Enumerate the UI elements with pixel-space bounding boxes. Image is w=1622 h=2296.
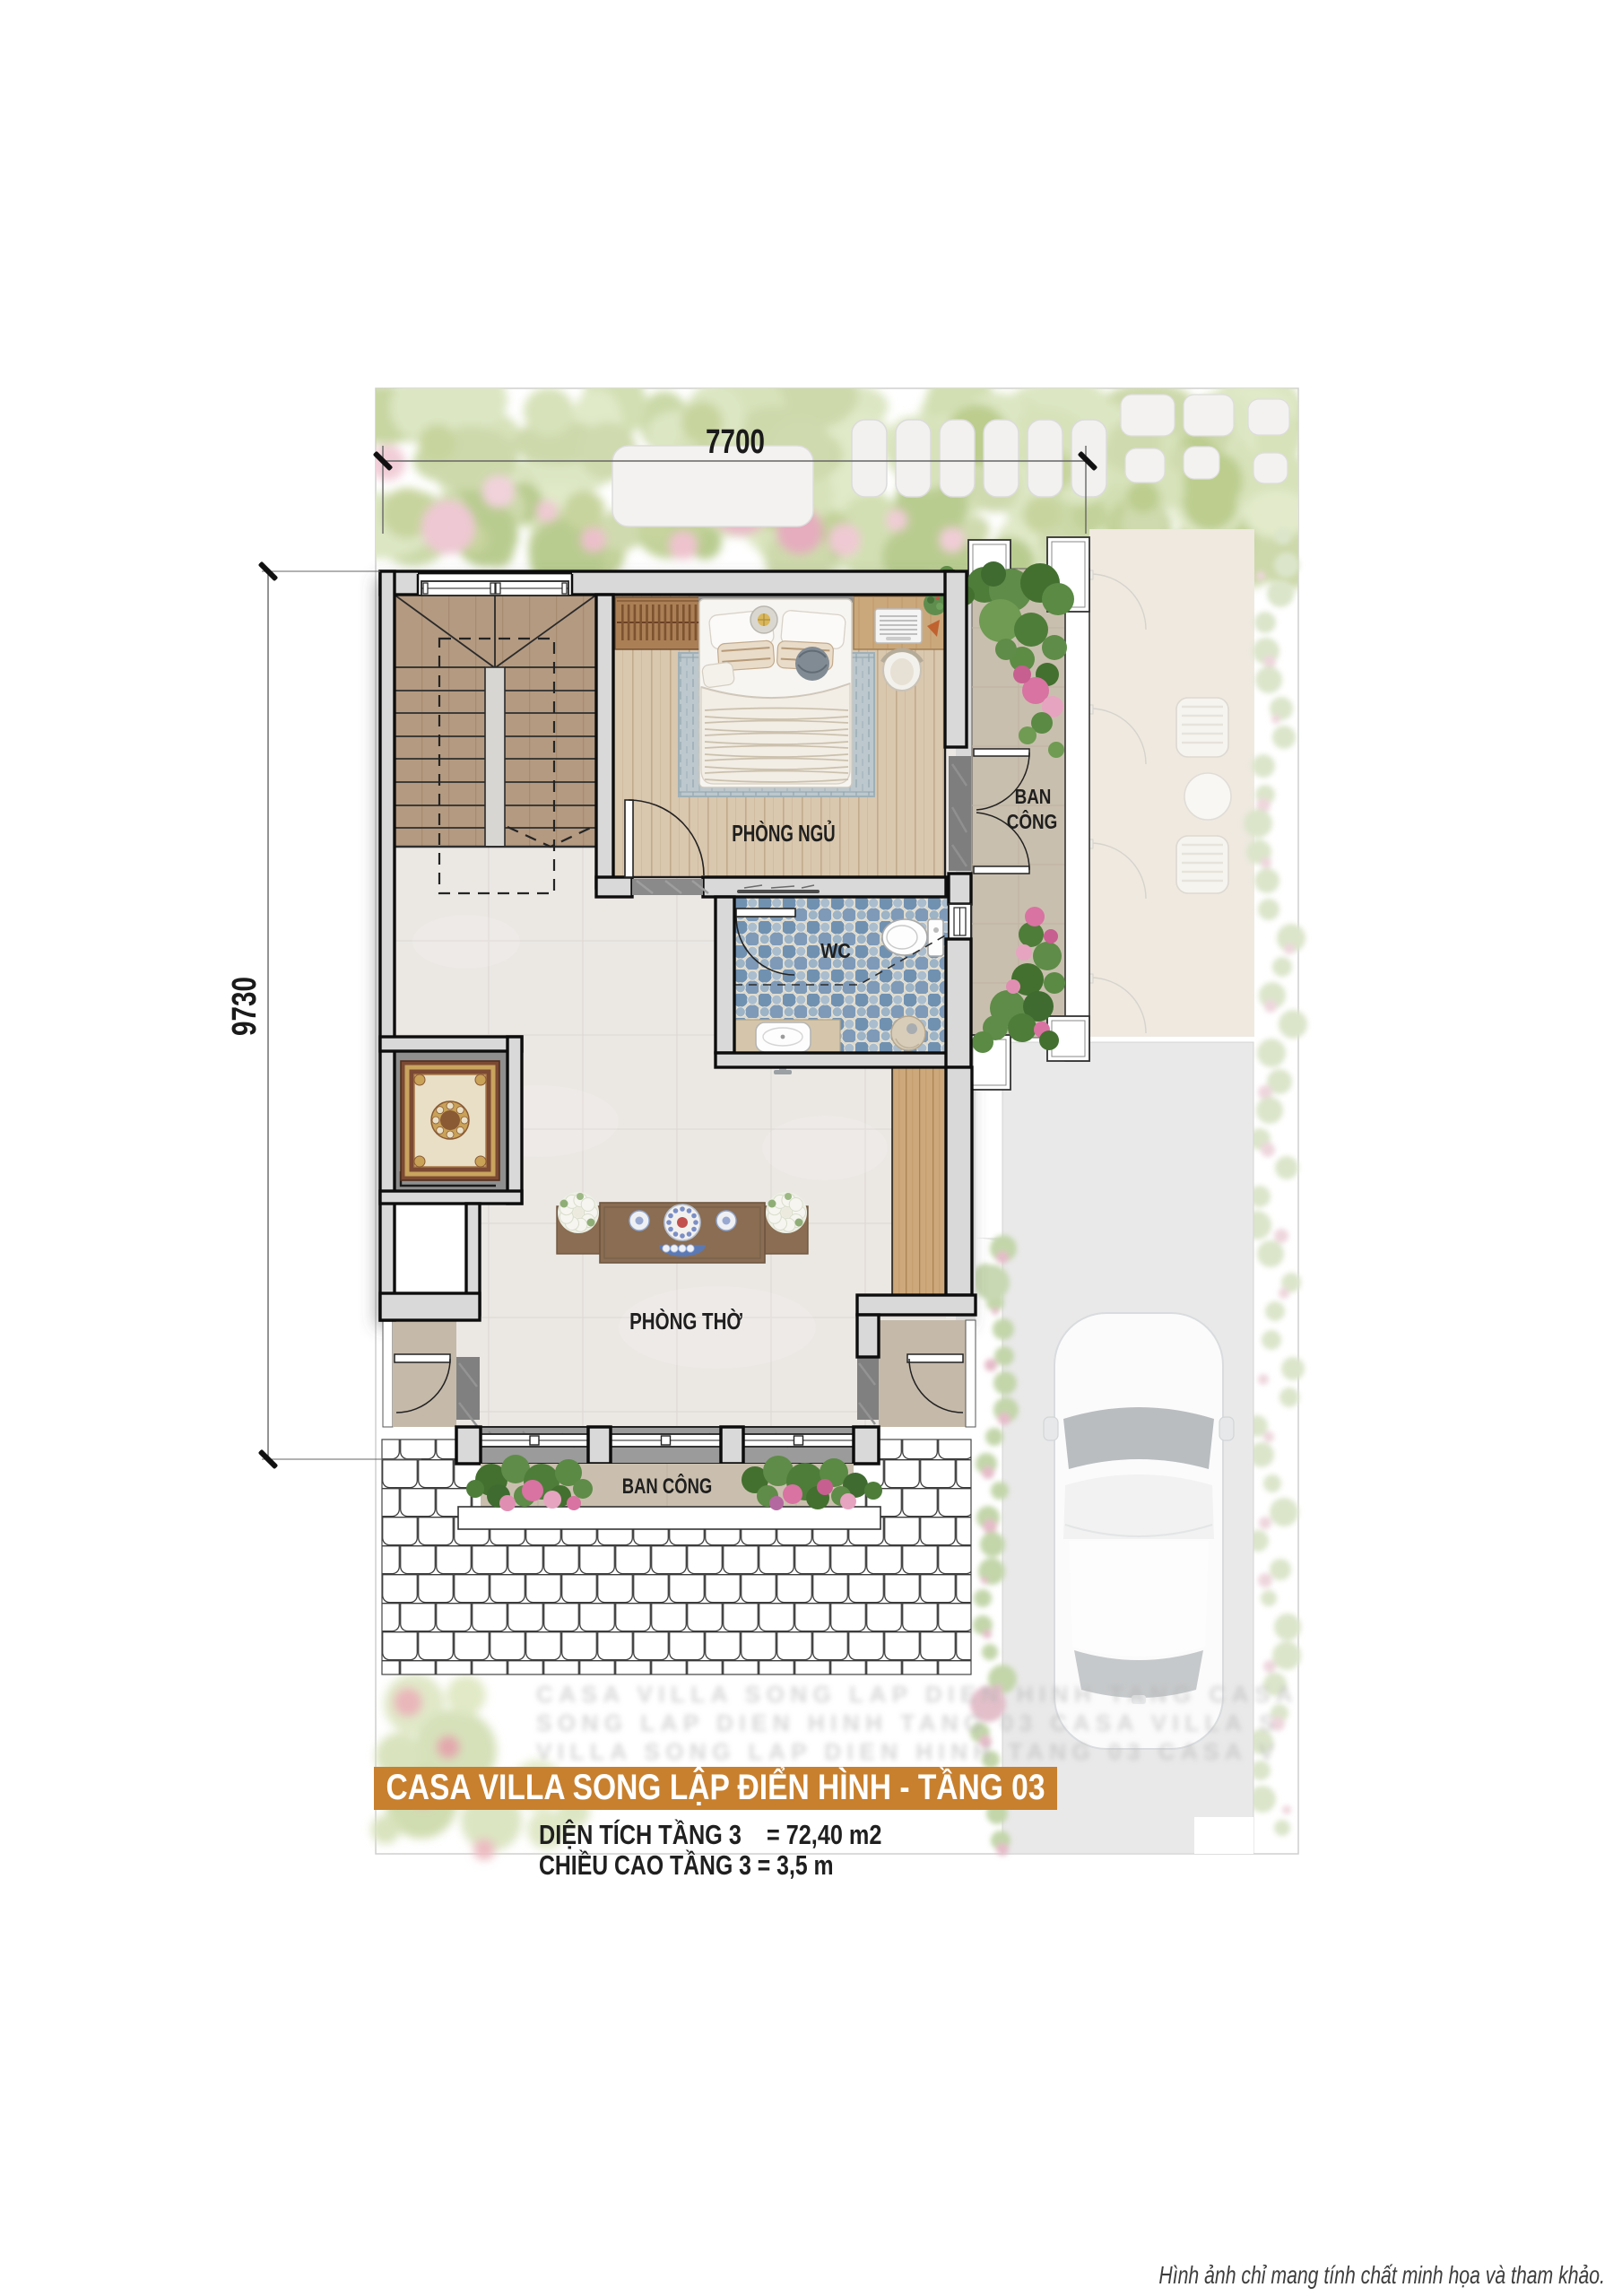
svg-text:PHÒNG NGỦ: PHÒNG NGỦ bbox=[732, 820, 835, 847]
svg-text:DIỆN TÍCH TẦNG 3 = 72,40 m2: DIỆN TÍCH TẦNG 3 = 72,40 m2 bbox=[539, 1818, 881, 1849]
svg-text:BAN: BAN bbox=[1015, 786, 1052, 808]
svg-text:PHÒNG THỜ: PHÒNG THỜ bbox=[629, 1308, 742, 1335]
svg-text:7700: 7700 bbox=[706, 423, 765, 461]
svg-text:BAN CÔNG: BAN CÔNG bbox=[622, 1474, 713, 1499]
svg-text:WC: WC bbox=[820, 939, 851, 963]
svg-text:Hình ảnh chỉ mang tính chất mi: Hình ảnh chỉ mang tính chất minh họa và … bbox=[1158, 2262, 1605, 2289]
svg-text:SONG LAP DIEN HINH TANG 03 CAS: SONG LAP DIEN HINH TANG 03 CASA VILLA S bbox=[536, 1709, 1280, 1736]
svg-text:CASA VILLA SONG LAP DIEN HINH: CASA VILLA SONG LAP DIEN HINH TANG CASA bbox=[536, 1681, 1298, 1708]
svg-text:VILLA SONG LAP DIEN HINH TANG: VILLA SONG LAP DIEN HINH TANG 03 CASA V bbox=[536, 1738, 1280, 1765]
svg-text:CHIỀU CAO TẦNG 3 = 3,5 m: CHIỀU CAO TẦNG 3 = 3,5 m bbox=[539, 1849, 834, 1880]
svg-text:9730: 9730 bbox=[226, 977, 264, 1036]
svg-text:CASA VILLA SONG LẬP ĐIỂN HÌNH: CASA VILLA SONG LẬP ĐIỂN HÌNH - TẦNG 03 bbox=[386, 1766, 1045, 1807]
svg-text:CÔNG: CÔNG bbox=[1007, 810, 1058, 833]
